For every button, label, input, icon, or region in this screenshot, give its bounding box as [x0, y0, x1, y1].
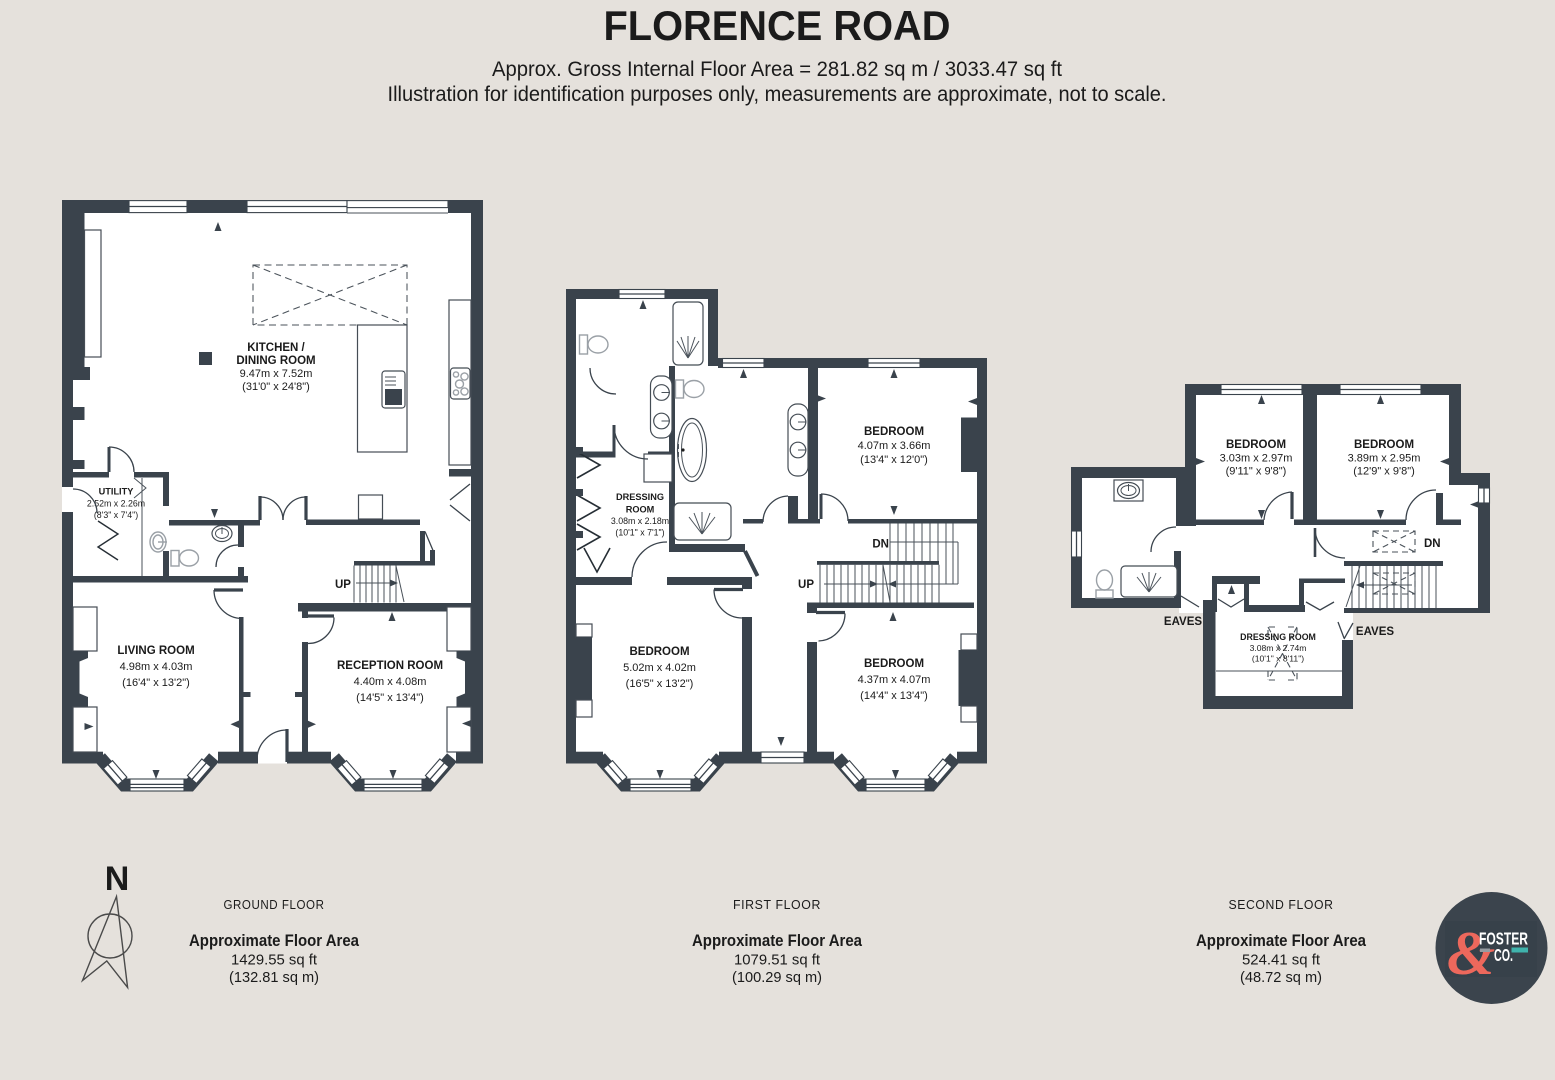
svg-text:KITCHEN /: KITCHEN / [247, 342, 305, 354]
svg-text:Approximate Floor Area: Approximate Floor Area [1196, 931, 1366, 950]
svg-text:BEDROOM: BEDROOM [629, 646, 689, 658]
svg-text:Approximate Floor Area: Approximate Floor Area [189, 931, 359, 950]
svg-text:CO.: CO. [1494, 945, 1513, 965]
svg-text:(100.29 sq m): (100.29 sq m) [732, 969, 822, 986]
svg-text:3.08m x 2.74m: 3.08m x 2.74m [1250, 643, 1307, 653]
svg-text:BEDROOM: BEDROOM [864, 426, 924, 438]
svg-text:N: N [105, 860, 130, 898]
svg-text:UP: UP [335, 579, 351, 591]
svg-text:(10'1" x 7'1"): (10'1" x 7'1") [615, 528, 664, 538]
svg-text:4.07m x 3.66m: 4.07m x 3.66m [858, 440, 931, 452]
svg-text:(13'4" x 12'0"): (13'4" x 12'0") [860, 454, 928, 466]
svg-text:FLORENCE ROAD: FLORENCE ROAD [604, 2, 951, 49]
svg-text:1079.51 sq ft: 1079.51 sq ft [734, 952, 821, 969]
svg-text:(16'5" x 13'2"): (16'5" x 13'2") [626, 678, 694, 690]
svg-text:EAVES: EAVES [1164, 616, 1202, 628]
svg-text:(8'3" x 7'4"): (8'3" x 7'4") [94, 510, 138, 520]
svg-text:BEDROOM: BEDROOM [864, 658, 924, 670]
svg-text:9.47m x 7.52m: 9.47m x 7.52m [240, 368, 313, 380]
svg-text:LIVING ROOM: LIVING ROOM [117, 645, 194, 657]
svg-text:5.02m x 4.02m: 5.02m x 4.02m [623, 662, 696, 674]
svg-text:DN: DN [872, 539, 889, 551]
svg-text:3.89m x 2.95m: 3.89m x 2.95m [1348, 453, 1421, 465]
svg-text:3.08m x 2.18m: 3.08m x 2.18m [611, 516, 669, 526]
svg-text:DRESSING ROOM: DRESSING ROOM [1240, 632, 1316, 642]
svg-text:(31'0" x 24'8"): (31'0" x 24'8") [242, 381, 310, 393]
svg-text:ROOM: ROOM [626, 505, 655, 515]
svg-text:FIRST FLOOR: FIRST FLOOR [733, 898, 821, 912]
svg-text:SECOND FLOOR: SECOND FLOOR [1229, 898, 1334, 912]
svg-text:(10'1" x 8'11"): (10'1" x 8'11") [1252, 654, 1304, 664]
svg-text:4.98m x 4.03m: 4.98m x 4.03m [120, 661, 193, 673]
svg-text:GROUND FLOOR: GROUND FLOOR [224, 898, 325, 912]
svg-text:(12'9" x 9'8"): (12'9" x 9'8") [1353, 466, 1415, 478]
svg-text:4.40m x 4.08m: 4.40m x 4.08m [354, 676, 427, 688]
svg-text:(9'11" x 9'8"): (9'11" x 9'8") [1226, 466, 1287, 478]
svg-text:1429.55 sq ft: 1429.55 sq ft [231, 952, 318, 969]
svg-text:DRESSING: DRESSING [616, 492, 664, 502]
svg-text:BEDROOM: BEDROOM [1354, 439, 1414, 451]
svg-text:UTILITY: UTILITY [99, 487, 134, 497]
svg-text:Approx. Gross Internal Floor A: Approx. Gross Internal Floor Area = 281.… [492, 58, 1062, 81]
svg-text:(16'4" x 13'2"): (16'4" x 13'2") [122, 677, 190, 689]
svg-text:UP: UP [798, 579, 814, 591]
svg-text:3.03m x 2.97m: 3.03m x 2.97m [1220, 453, 1293, 465]
svg-text:DN: DN [1424, 538, 1441, 550]
svg-text:EAVES: EAVES [1356, 626, 1394, 638]
svg-text:BEDROOM: BEDROOM [1226, 439, 1286, 451]
svg-text:(14'5" x 13'4"): (14'5" x 13'4") [356, 692, 424, 704]
svg-text:Illustration for identificatio: Illustration for identification purposes… [388, 83, 1167, 106]
svg-text:524.41 sq ft: 524.41 sq ft [1242, 952, 1321, 969]
svg-text:4.37m x 4.07m: 4.37m x 4.07m [858, 674, 931, 686]
svg-text:(48.72 sq m): (48.72 sq m) [1240, 969, 1322, 986]
svg-text:DINING ROOM: DINING ROOM [236, 355, 315, 367]
svg-text:Approximate Floor Area: Approximate Floor Area [692, 931, 862, 950]
svg-text:(132.81 sq m): (132.81 sq m) [229, 969, 319, 986]
svg-text:(14'4" x 13'4"): (14'4" x 13'4") [860, 690, 928, 702]
svg-text:RECEPTION ROOM: RECEPTION ROOM [337, 660, 443, 672]
